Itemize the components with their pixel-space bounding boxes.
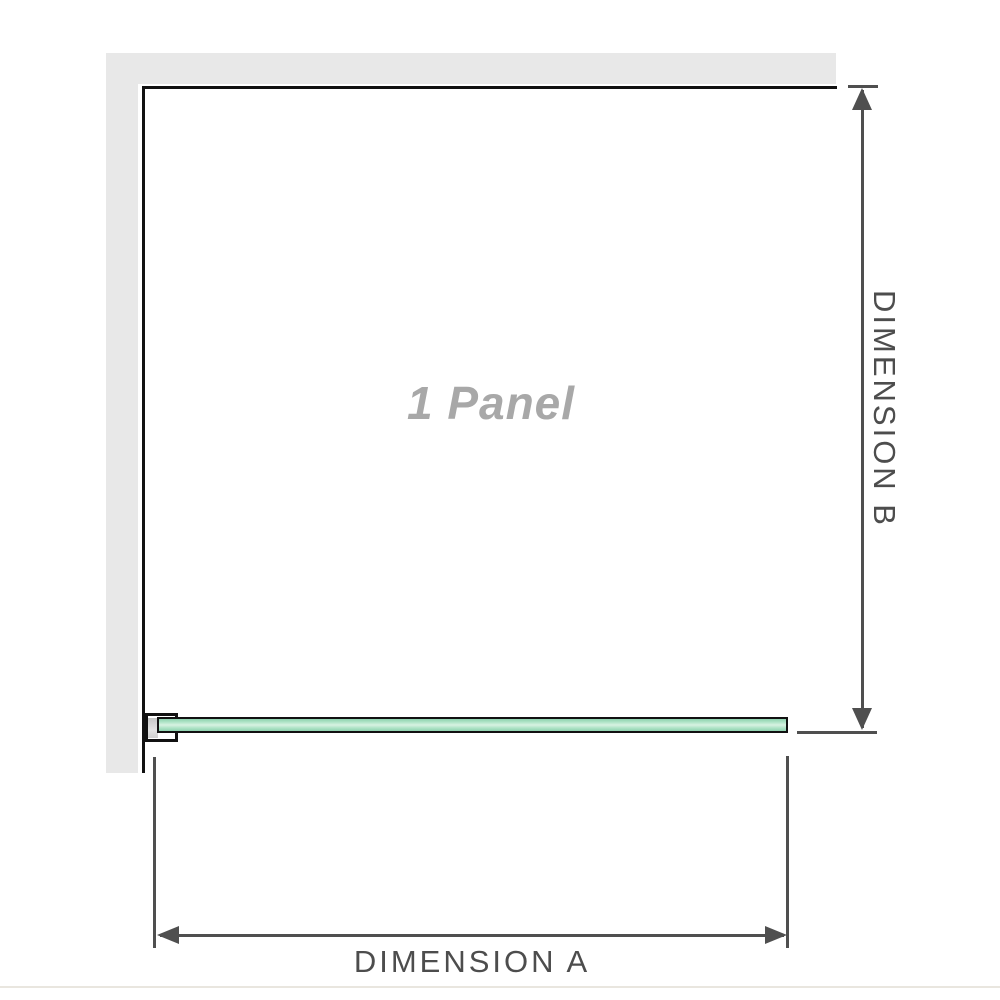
panel-area: 1 Panel [145, 89, 837, 717]
dim-b-bottom-tick [797, 731, 877, 734]
dim-a-extension-line-right [786, 756, 789, 948]
page-divider [0, 986, 1000, 988]
dim-a-label: DIMENSION A [354, 944, 590, 979]
dim-b-arrow-up-icon [852, 88, 872, 110]
wall-side-bar [106, 53, 138, 773]
panel-count-label: 1 Panel [407, 376, 575, 430]
dim-b-arrow-down-icon [852, 708, 872, 730]
diagram-canvas: 1 Panel DIMENSION A DIMENSION B [0, 0, 1000, 1000]
dim-a-arrow-right-icon [765, 926, 787, 944]
wall-top-bar [106, 53, 836, 84]
glass-panel-bar [157, 717, 788, 733]
dim-b-label: DIMENSION B [866, 290, 902, 528]
dim-b-line [861, 90, 864, 728]
dim-a-arrow-left-icon [157, 926, 179, 944]
dim-a-line [160, 934, 784, 937]
dim-a-extension-line-left [153, 757, 156, 948]
dim-a-label-wrap: DIMENSION A [157, 944, 787, 980]
